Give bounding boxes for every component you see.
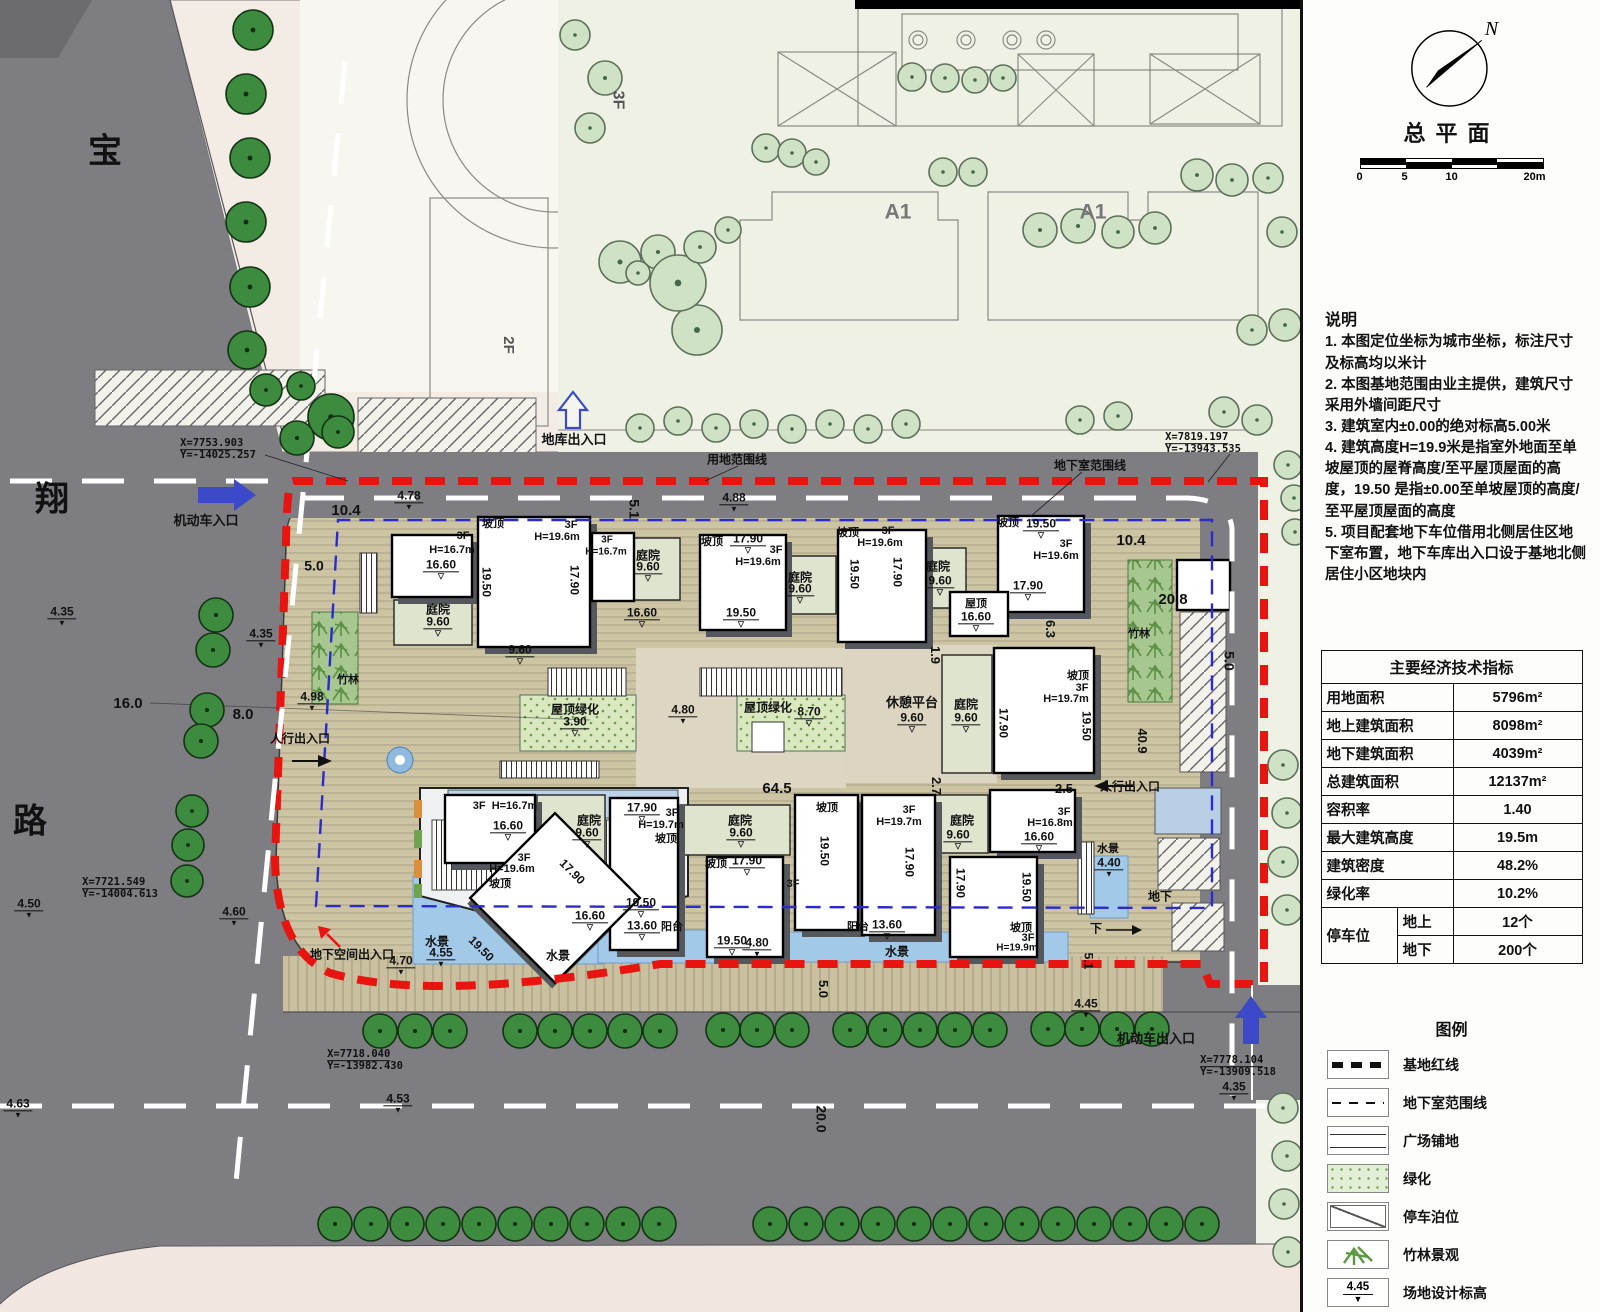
master-plan-sheet: 宝翔路3F2FA1A1X=7753.903Y=-14025.257X=7819.… bbox=[0, 0, 1600, 1312]
south-sidewalk bbox=[0, 1244, 1300, 1312]
parking-swatch-icon bbox=[1327, 1202, 1389, 1231]
scale-tick: 5 bbox=[1402, 171, 1408, 183]
scale-tick: 10 bbox=[1446, 171, 1458, 183]
bamboo-swatch-icon bbox=[1327, 1240, 1389, 1269]
legend-item-greenery: 绿化 bbox=[1327, 1164, 1600, 1193]
title-block-panel: N 总平面 0 5 10 20m 说明 1. 本图定位坐标为城市坐标，标注尺寸及… bbox=[1300, 0, 1600, 1312]
legend-item-bamboo: 竹林景观 bbox=[1327, 1240, 1600, 1269]
greenery-swatch-icon bbox=[1327, 1164, 1389, 1193]
legend-title: 图例 bbox=[1303, 1016, 1600, 1040]
scale-bar: 0 5 10 20m bbox=[1360, 158, 1544, 188]
roof-garden-west bbox=[520, 695, 636, 751]
site-plan-graphics bbox=[0, 0, 1300, 1312]
legend-item-site-elevation: 4.45▼ 场地设计标高 bbox=[1327, 1278, 1600, 1307]
legend-item-underground-line: 地下室范围线 bbox=[1327, 1088, 1600, 1117]
note-item: 2. 本图基地范围由业主提供，建筑尺寸采用外墙间距尺寸 bbox=[1325, 375, 1586, 417]
north-arrow-compass: N bbox=[1392, 10, 1512, 114]
notes-title: 说明 bbox=[1325, 306, 1586, 330]
economic-indicators-table: 主要经济技术指标 用地面积5796m² 地上建筑面积8098m² 地下建筑面积4… bbox=[1321, 650, 1583, 964]
site-plan-drawing: 宝翔路3F2FA1A1X=7753.903Y=-14025.257X=7819.… bbox=[0, 0, 1300, 1312]
scale-tick: 0 bbox=[1357, 171, 1363, 183]
legend-item-redline: 基地红线 bbox=[1327, 1050, 1600, 1079]
redline-swatch-icon bbox=[1327, 1050, 1389, 1079]
note-item: 4. 建筑高度H=19.9米是指室外地面至单坡屋顶的屋脊高度/至平屋顶屋面的高度… bbox=[1325, 438, 1586, 523]
sheet-edge-bar bbox=[855, 0, 1300, 9]
dashed-line-swatch-icon bbox=[1327, 1088, 1389, 1117]
note-item: 5. 项目配套地下车位借用北侧居住区地下室布置，地下车库出入口设于基地北侧居住小… bbox=[1325, 523, 1586, 586]
note-item: 3. 建筑室内±0.00的绝对标高5.00米 bbox=[1325, 417, 1586, 438]
legend-block: 图例 基地红线 地下室范围线 广场铺地 绿化 停车泊位 bbox=[1303, 1016, 1600, 1312]
bamboo-grove-east bbox=[1128, 560, 1172, 702]
sheet-title: 总平面 bbox=[1303, 116, 1600, 148]
scale-tick: 20m bbox=[1524, 171, 1546, 183]
table-title: 主要经济技术指标 bbox=[1321, 651, 1582, 684]
notes-block: 说明 1. 本图定位坐标为城市坐标，标注尺寸及标高均以米计 2. 本图基地范围由… bbox=[1325, 306, 1586, 586]
north-letter: N bbox=[1483, 18, 1499, 40]
legend-item-paving: 广场铺地 bbox=[1327, 1126, 1600, 1155]
paving-swatch-icon bbox=[1327, 1126, 1389, 1155]
note-item: 1. 本图定位坐标为城市坐标，标注尺寸及标高均以米计 bbox=[1325, 332, 1586, 374]
filled-elevation-marker-icon: 4.45▼ bbox=[1327, 1278, 1389, 1307]
legend-item-parking: 停车泊位 bbox=[1327, 1202, 1600, 1231]
bamboo-grove-west bbox=[312, 612, 358, 704]
